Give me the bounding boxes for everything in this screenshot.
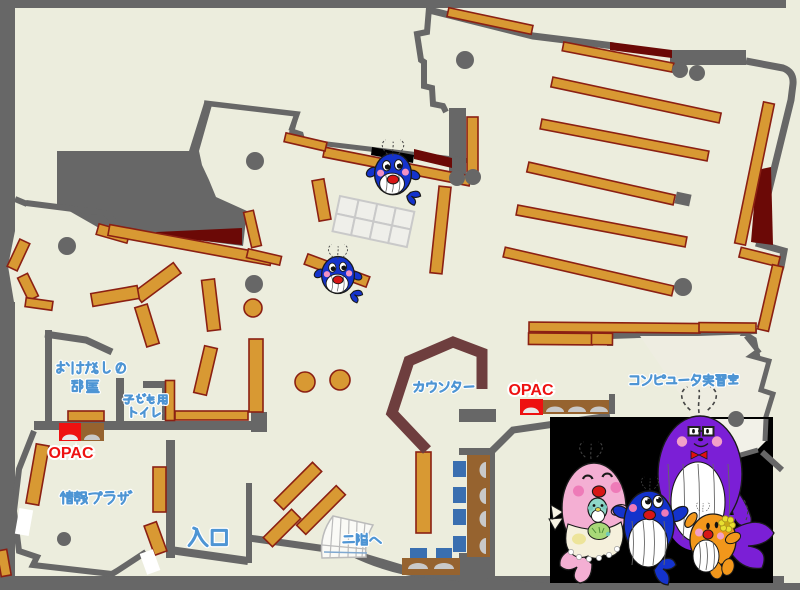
- svg-text:OPAC: OPAC: [48, 445, 93, 462]
- svg-text:OPAC: OPAC: [508, 382, 553, 399]
